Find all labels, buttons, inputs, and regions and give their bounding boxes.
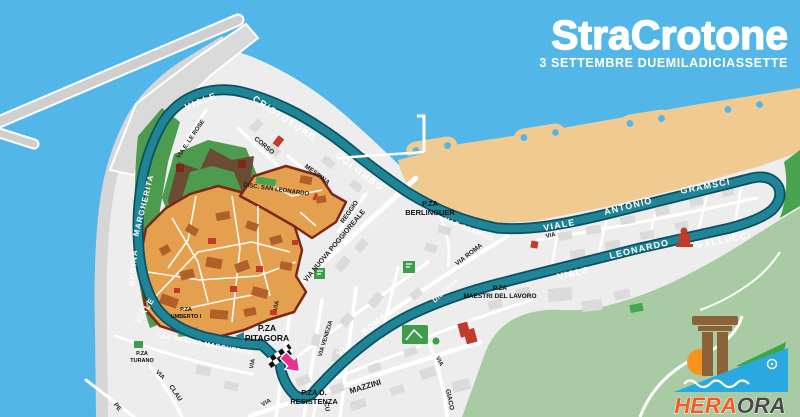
event-title: StraCrotone 3 SETTEMBRE DUEMILADICIASSET…: [539, 12, 788, 70]
piazza-label: P.ZA: [180, 307, 192, 313]
piazza-label: P.ZA D.: [301, 388, 326, 397]
piazza-label: TURANO: [130, 358, 154, 364]
piazza-label: P.ZA: [136, 351, 148, 357]
piazza-label: P.ZA: [422, 199, 439, 208]
piazza-label: BERLINGUER: [405, 208, 455, 217]
piazza-label: PITAGORA: [245, 333, 289, 343]
piazza-label: P.ZA: [258, 323, 276, 333]
piazza-label: MAESTRI DEL LAVORO: [463, 293, 536, 300]
crotone-race-map: VIALE CRISTOFORO COLOMBO MARGHERITA REGI…: [0, 0, 800, 417]
piazza-label: P.ZA: [493, 285, 507, 292]
event-date: 3 SETTEMBRE DUEMILADICIASSETTE: [539, 56, 788, 70]
page-title: StraCrotone: [551, 12, 788, 58]
monument-icon: [403, 261, 415, 273]
piazza-label: RESISTENZA: [290, 397, 338, 406]
piazza-label: UMBERTO I: [171, 314, 202, 320]
park-icon: [134, 341, 143, 348]
church-icon: [530, 241, 538, 249]
logo-wordmark: HERAORA: [674, 393, 785, 417]
